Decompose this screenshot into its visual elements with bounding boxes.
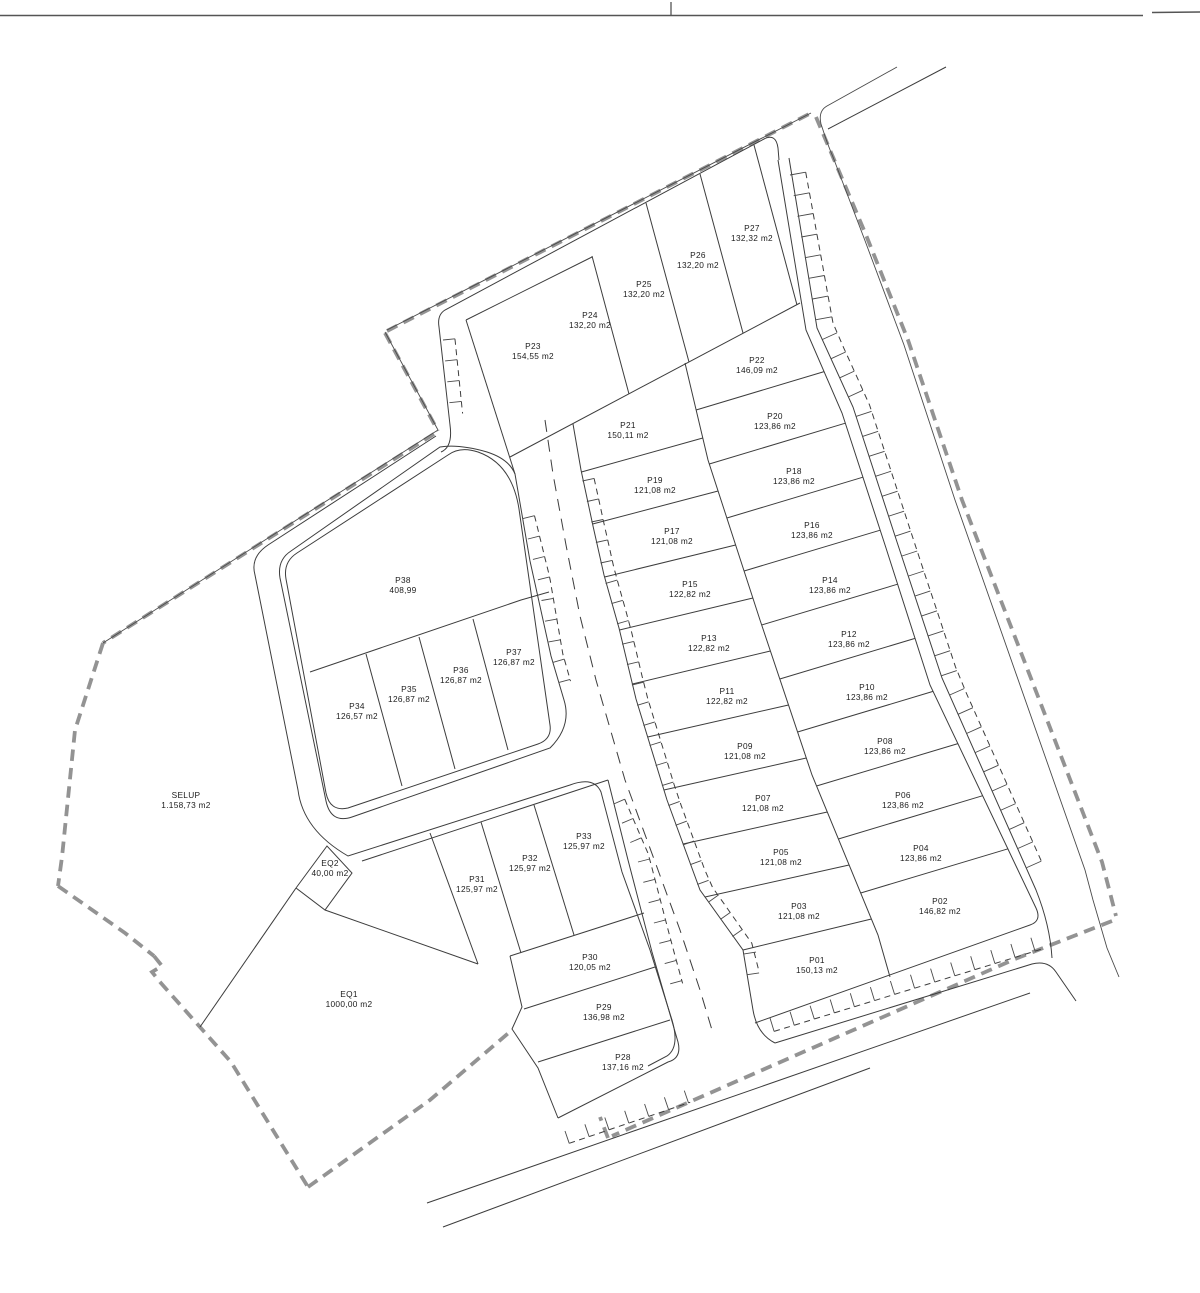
svg-text:P04: P04 [913,843,929,853]
svg-text:408,99: 408,99 [389,585,416,595]
svg-text:123,86 m2: 123,86 m2 [846,692,888,702]
svg-text:P19: P19 [647,475,663,485]
svg-text:132,32 m2: 132,32 m2 [731,233,773,243]
svg-text:136,98 m2: 136,98 m2 [583,1012,625,1022]
svg-text:P02: P02 [932,896,948,906]
svg-text:121,08 m2: 121,08 m2 [634,485,676,495]
svg-text:P17: P17 [664,526,680,536]
svg-text:126,87 m2: 126,87 m2 [388,694,430,704]
svg-text:P23: P23 [525,341,541,351]
svg-text:P35: P35 [401,684,417,694]
svg-text:P06: P06 [895,790,911,800]
svg-text:126,57 m2: 126,57 m2 [336,711,378,721]
svg-text:P38: P38 [395,575,411,585]
svg-text:P34: P34 [349,701,365,711]
svg-text:EQ1: EQ1 [340,989,358,999]
svg-text:150,13 m2: 150,13 m2 [796,965,838,975]
svg-text:123,86 m2: 123,86 m2 [900,853,942,863]
svg-text:P16: P16 [804,520,820,530]
svg-text:123,86 m2: 123,86 m2 [773,476,815,486]
svg-text:40,00 m2: 40,00 m2 [312,868,349,878]
svg-text:123,86 m2: 123,86 m2 [754,421,796,431]
svg-text:P20: P20 [767,411,783,421]
svg-text:EQ2: EQ2 [321,858,339,868]
svg-text:1.158,73 m2: 1.158,73 m2 [161,800,211,810]
svg-text:123,86 m2: 123,86 m2 [882,800,924,810]
svg-text:123,86 m2: 123,86 m2 [791,530,833,540]
svg-text:122,82 m2: 122,82 m2 [706,696,748,706]
svg-text:123,86 m2: 123,86 m2 [809,585,851,595]
svg-text:P15: P15 [682,579,698,589]
svg-text:P33: P33 [576,831,592,841]
svg-text:P31: P31 [469,874,485,884]
svg-text:P09: P09 [737,741,753,751]
svg-text:146,82 m2: 146,82 m2 [919,906,961,916]
svg-text:P29: P29 [596,1002,612,1012]
svg-text:126,87 m2: 126,87 m2 [493,657,535,667]
svg-text:125,97 m2: 125,97 m2 [563,841,605,851]
svg-text:P30: P30 [582,952,598,962]
svg-text:P12: P12 [841,629,857,639]
svg-text:P36: P36 [453,665,469,675]
svg-text:P27: P27 [744,223,760,233]
svg-text:P11: P11 [719,686,734,696]
svg-text:123,86 m2: 123,86 m2 [828,639,870,649]
svg-text:P24: P24 [582,310,598,320]
svg-text:1000,00 m2: 1000,00 m2 [326,999,373,1009]
svg-text:P26: P26 [690,250,706,260]
svg-text:P32: P32 [522,853,538,863]
svg-text:132,20 m2: 132,20 m2 [623,289,665,299]
svg-text:150,11 m2: 150,11 m2 [607,430,648,440]
svg-text:P28: P28 [615,1052,631,1062]
svg-text:122,82 m2: 122,82 m2 [669,589,711,599]
svg-text:121,08 m2: 121,08 m2 [742,803,784,813]
svg-text:121,08 m2: 121,08 m2 [778,911,820,921]
svg-text:125,97 m2: 125,97 m2 [456,884,498,894]
svg-text:P37: P37 [506,647,522,657]
svg-text:154,55 m2: 154,55 m2 [512,351,554,361]
svg-text:P03: P03 [791,901,807,911]
svg-text:P01: P01 [809,955,825,965]
svg-text:P14: P14 [822,575,838,585]
svg-text:P05: P05 [773,847,789,857]
svg-text:132,20 m2: 132,20 m2 [677,260,719,270]
svg-text:121,08 m2: 121,08 m2 [760,857,802,867]
svg-text:121,08 m2: 121,08 m2 [724,751,766,761]
svg-text:120,05 m2: 120,05 m2 [569,962,611,972]
svg-text:132,20 m2: 132,20 m2 [569,320,611,330]
svg-text:P21: P21 [620,420,636,430]
svg-text:137,16 m2: 137,16 m2 [602,1062,644,1072]
svg-text:126,87 m2: 126,87 m2 [440,675,482,685]
svg-text:P13: P13 [701,633,717,643]
svg-text:P25: P25 [636,279,652,289]
svg-text:121,08 m2: 121,08 m2 [651,536,693,546]
svg-text:SELUP: SELUP [172,790,201,800]
svg-text:P10: P10 [859,682,875,692]
svg-text:123,86 m2: 123,86 m2 [864,746,906,756]
svg-text:122,82 m2: 122,82 m2 [688,643,730,653]
svg-text:P18: P18 [786,466,802,476]
svg-text:P22: P22 [749,355,765,365]
svg-text:P08: P08 [877,736,893,746]
svg-text:P07: P07 [755,793,771,803]
svg-text:125,97 m2: 125,97 m2 [509,863,551,873]
svg-text:146,09 m2: 146,09 m2 [736,365,778,375]
